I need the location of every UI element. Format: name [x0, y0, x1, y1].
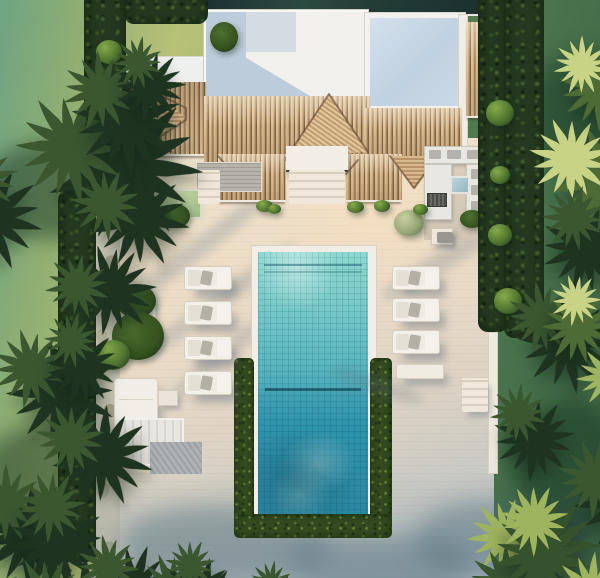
pool-step-line	[264, 271, 362, 273]
cabinet-inset	[447, 150, 461, 159]
pool-step-line	[264, 264, 362, 266]
shrub	[96, 340, 130, 370]
kitchen-left-counter	[424, 164, 452, 220]
towel	[200, 375, 213, 391]
deck-edge-curb	[488, 332, 498, 474]
skylight-glass	[370, 18, 458, 106]
low-table	[396, 364, 444, 379]
towel	[200, 270, 213, 286]
topiary	[162, 204, 190, 228]
pavilion-roof	[150, 442, 202, 474]
aerial-villa-scene	[0, 0, 600, 578]
shrub	[490, 166, 510, 184]
entry-canopy	[286, 146, 348, 172]
pool-hedge-bottom	[234, 514, 392, 538]
sun-lounger	[392, 266, 440, 290]
shrub	[488, 224, 512, 246]
pool-shade	[258, 400, 368, 516]
sun-lounger	[184, 371, 232, 395]
sun-lounger	[184, 266, 232, 290]
shrub	[116, 140, 136, 158]
towel	[200, 305, 213, 321]
shrub	[413, 204, 428, 215]
rooftop-planter	[210, 22, 238, 52]
shrub	[494, 288, 522, 314]
sun-lounger	[392, 330, 440, 354]
palm-shadow	[415, 500, 585, 575]
lounger-column-left	[184, 266, 232, 395]
bench-steps	[462, 378, 488, 412]
cabinet-inset	[429, 150, 441, 159]
hedge-strip-top	[124, 0, 208, 24]
shrub	[374, 200, 390, 212]
pool-lap-line	[265, 388, 361, 391]
lounger-column-right	[392, 266, 440, 354]
towel	[408, 334, 421, 350]
sun-lounger	[184, 301, 232, 325]
towel	[408, 302, 421, 318]
bench-seat	[437, 232, 453, 243]
shrub	[96, 40, 122, 64]
pool-hedge-left	[234, 358, 254, 526]
entry-steps	[289, 170, 345, 204]
sink-basin	[450, 176, 470, 194]
shrub	[486, 100, 514, 126]
sun-lounger	[392, 298, 440, 322]
sun-lounger	[184, 336, 232, 360]
side-table	[158, 390, 178, 406]
grill	[427, 193, 447, 207]
side-steps	[198, 170, 220, 204]
towel	[200, 340, 213, 356]
towel	[408, 270, 421, 286]
roof-shadow	[246, 12, 296, 52]
shrub	[110, 88, 134, 110]
hedge-wall-left-lower	[58, 190, 96, 562]
shrub	[347, 201, 364, 213]
shingle-roof-lower-right	[346, 154, 402, 202]
shrub	[268, 204, 281, 214]
